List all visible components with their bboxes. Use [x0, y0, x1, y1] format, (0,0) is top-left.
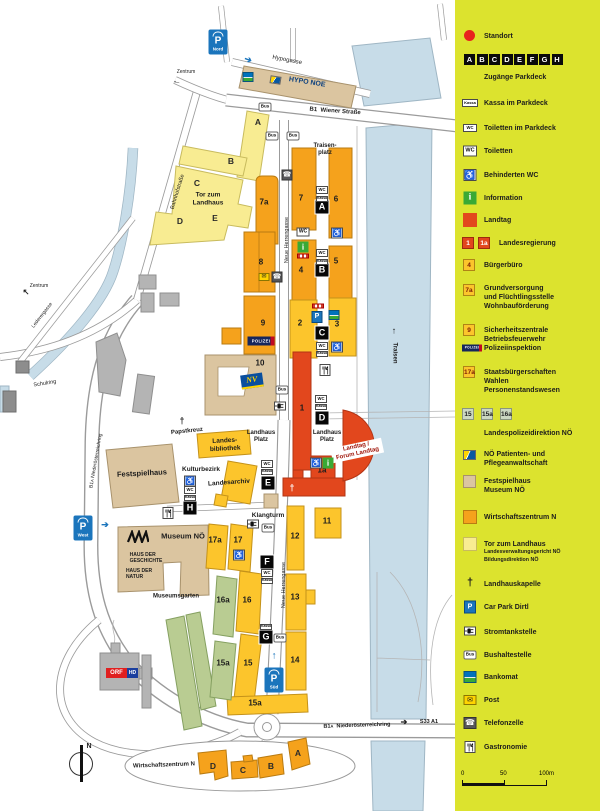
building-3-number: 3: [335, 320, 339, 329]
wc-icon: WC: [316, 186, 328, 194]
telephone-icon: ☎: [272, 272, 283, 283]
legend-standort-label: Standort: [484, 32, 513, 41]
wz-building-b-label: B: [268, 761, 274, 771]
landhaus-platz-label-west: Landhaus Platz: [247, 430, 275, 444]
kassa-icon: Kassa: [462, 99, 478, 107]
bus-stop-icon: Bus: [262, 524, 275, 533]
legend-row-label: Kassa im Parkdeck: [484, 99, 548, 108]
wheelchair-icon: ♿: [331, 342, 343, 353]
sicherheitszentrale-9-icon: 9: [463, 324, 475, 336]
orf-logo: ORF: [106, 668, 127, 678]
niederoesterreichring-label-bottom: Niederösterreichring: [336, 722, 390, 730]
orf-hd-logo: HD: [127, 668, 138, 678]
building-16a-number: 16a: [216, 596, 229, 605]
s33-a1-label: S33 A1: [420, 719, 438, 725]
kassa-icon: Kassa: [184, 495, 196, 501]
legend-row-label: Car Park Dirtl: [484, 603, 529, 612]
legend-row-label: Toiletten: [484, 147, 513, 156]
parkdeck-entrance-h: H: [184, 502, 197, 515]
buergerbuero-4-icon: 4: [463, 259, 475, 271]
legend-panel: Standort A B C D E F G H Zugänge Parkdec…: [455, 0, 600, 811]
building-8-number: 8: [259, 258, 263, 267]
post-icon: ✉: [259, 273, 270, 281]
parking-p: P: [209, 37, 228, 47]
parkdeck-letter-b: B: [477, 54, 488, 65]
scale-bar-solid: [462, 783, 504, 786]
tor-building-d-label: D: [177, 216, 183, 226]
landesbibliothek-label: Landes- bibliothek: [209, 437, 240, 454]
parking-nord-icon: PNord: [209, 30, 228, 55]
scale-bar-line: [504, 785, 546, 786]
tor-building-e-label: E: [212, 213, 218, 223]
legend-row-label: Tor zum Landhaus: [484, 540, 546, 549]
legend-row-label: Stromtankstelle: [484, 628, 537, 637]
parkdeck-entrance-b: B: [316, 264, 329, 277]
papstkreuz-cross-icon: †: [179, 416, 184, 427]
parkdeck-letter-c: C: [489, 54, 500, 65]
parkdeck-letter-d: D: [502, 54, 513, 65]
hypo-noe-flag-icon: [269, 75, 281, 85]
tor-zum-landhaus-color-icon: [463, 537, 477, 551]
bankomat-icon: [329, 310, 340, 320]
legend-row-label: Gastronomie: [484, 743, 527, 752]
standort-icon: [464, 30, 475, 41]
buildings-tor-zum-landhaus: [150, 111, 269, 245]
building-7: [292, 148, 316, 230]
legend-row-sublabel: Landesverwaltungsgericht NÖ Bildungsdire…: [484, 549, 561, 564]
legend-row-label: Post: [484, 696, 499, 705]
legend-row-label: NÖ Patienten- und Pflegeanwaltschaft: [484, 450, 547, 468]
wc-icon: WC: [316, 249, 328, 257]
gastronomie-icon: [320, 364, 331, 376]
wheelchair-icon: ♿: [233, 550, 245, 561]
building-14-number: 14: [291, 656, 300, 665]
parkdeck-letter-e: E: [514, 54, 525, 65]
tor-building-b-label: B: [228, 156, 234, 166]
traisenplatz-label: Traisen- platz: [313, 143, 336, 157]
legend-row-label: Behinderten WC: [484, 171, 538, 180]
building-13-number: 13: [291, 593, 300, 602]
building-4-number: 4: [299, 266, 303, 275]
car-park-dirtl-icon: P: [464, 601, 476, 614]
legend-zugaenge-label: Zugänge Parkdeck: [484, 73, 546, 82]
wc-icon: WC: [316, 342, 328, 350]
parking-sued-arrow: ↑: [272, 651, 277, 662]
stromtankstelle-icon: [247, 520, 259, 529]
bus-stop-icon: Bus: [287, 132, 300, 141]
wheelchair-icon: ♿: [184, 476, 196, 487]
information-icon: i: [323, 458, 334, 469]
festspielhaus-color-icon: [463, 475, 476, 488]
parkdeck-entrance-d: D: [316, 412, 329, 425]
wc-icon: WC: [463, 146, 477, 157]
polizei-sign-text: POLIZEI: [248, 337, 275, 346]
parking-west-icon: PWest: [74, 516, 93, 541]
landhausviertel-map-page: Zentrum ← Hypogasse HYPO NOE B1 Wiener S…: [0, 0, 600, 811]
building-16-number: 16: [243, 596, 252, 605]
bankomat-icon: [464, 671, 477, 683]
parkdeck-letter-a: A: [464, 54, 475, 65]
legend-row-label: Bürgerbüro: [484, 261, 523, 270]
building-9-number: 9: [261, 319, 265, 328]
landhauskapelle-cross-icon: †: [289, 483, 294, 494]
building-12-number: 12: [291, 532, 300, 541]
building-15: [234, 634, 262, 702]
kassa-icon: Kassa: [260, 624, 272, 630]
building-17: [228, 524, 253, 572]
parkdeck-entrance-f: F: [261, 556, 274, 569]
building-klangturm: [264, 494, 278, 508]
legend-row-label: Landhauskapelle: [484, 580, 541, 589]
lpd-15a-icon: 15a: [481, 408, 493, 420]
telephone-icon: ☎: [464, 717, 477, 729]
bus-stop-icon: Bus: [266, 132, 279, 141]
parking-nord-label: Nord: [209, 47, 228, 52]
museum-noe-label: Museum NÖ: [161, 533, 205, 542]
parkdeck-letter-f: F: [527, 54, 538, 65]
building-10-number: 10: [256, 359, 265, 368]
b1a-label-bottom: B1a: [323, 724, 333, 730]
kassa-icon: Kassa: [316, 259, 328, 265]
building-7-number: 7: [299, 194, 303, 203]
compass-needle: [80, 745, 83, 782]
parkdeck-entrance-e: E: [262, 477, 275, 490]
zentrum-label-left: Zentrum: [30, 284, 49, 290]
kassa-icon: Kassa: [261, 469, 273, 475]
legend-row-label: Telefonzelle: [484, 719, 524, 728]
legend-row-label: Toiletten im Parkdeck: [484, 124, 556, 133]
wc-icon: WC: [184, 486, 196, 494]
parking-sued-label: Süd: [265, 685, 284, 690]
kassa-icon: Kassa: [315, 404, 327, 410]
gastronomie-icon: [163, 507, 174, 519]
street-neue-herrengasse-bottom: Neue Herrengasse: [281, 562, 287, 608]
kassa-icon: Kassa: [316, 196, 328, 202]
b1a-direction-arrow: ➔: [401, 717, 408, 726]
street-neue-herrengasse-top: Neue Herrengasse: [284, 217, 290, 263]
tor-building-c-label: C: [194, 178, 200, 188]
bus-stop-icon: Bus: [274, 634, 287, 643]
tor-building-a-label: A: [255, 117, 261, 127]
legend-row-label: Wirtschaftszentrum N: [484, 513, 556, 522]
legend-row-label: Landesregierung: [499, 239, 556, 248]
building-15a: [210, 641, 236, 700]
building-1-number: 1: [300, 404, 304, 413]
building-17a-number: 17a: [208, 536, 221, 545]
wz-building-c-label: C: [240, 765, 246, 775]
building-11-number: 11: [323, 517, 331, 526]
legend-row-label: Staatsbürgerschaften Wahlen Personenstan…: [484, 368, 560, 395]
noe-flag-icon: [463, 450, 476, 460]
kassa-icon: Kassa: [316, 351, 328, 357]
parkdeck-entrance-c: C: [316, 327, 329, 340]
grundversorgung-7a-icon: 7a: [463, 284, 475, 296]
building-15a-bar-number: 15a: [248, 699, 261, 708]
wheelchair-icon: ♿: [310, 458, 322, 469]
polizei-sign: POLIZEI: [248, 337, 275, 346]
parking-sued-icon: PSüd: [265, 668, 284, 693]
wc-icon: WC: [297, 228, 310, 237]
b1-label: B1: [309, 107, 317, 114]
information-icon: i: [464, 192, 477, 205]
haus-der-geschichte-label: HAUS DER GESCHICHTE: [130, 553, 163, 565]
parking-p: P: [74, 523, 93, 533]
bus-stop-icon: Bus: [259, 103, 272, 112]
legend-row-label: Landespolizeidirektion NÖ: [484, 429, 572, 438]
map-canvas: Zentrum ← Hypogasse HYPO NOE B1 Wiener S…: [0, 0, 455, 811]
polizei-icon: POLIZEI: [462, 345, 482, 352]
car-park-dirtl-icon: P: [312, 311, 323, 323]
building-2-number: 2: [298, 319, 302, 328]
wz-building-d-label: D: [210, 761, 216, 771]
kapelle-cross-icon: †: [467, 577, 473, 590]
scale-0-label: 0: [461, 771, 464, 777]
telephone-icon: ☎: [282, 170, 293, 181]
post-icon: ✉: [464, 695, 477, 705]
building-15-number: 15: [244, 659, 253, 668]
building-6: [329, 148, 352, 238]
map-base-svg: [0, 0, 455, 811]
betriebsfeuerwehr-icon: [312, 304, 324, 309]
landtag-color-icon: [463, 213, 477, 227]
legend-row-label: Landtag: [484, 216, 511, 225]
staatsbuergerschaften-17a-icon: 17a: [463, 366, 475, 378]
zentrum-label-top: Zentrum: [177, 70, 196, 76]
wc-icon: WC: [315, 395, 327, 403]
parkdeck-entrance-g: G: [260, 631, 273, 644]
scale-50-label: 50: [500, 771, 507, 777]
betriebsfeuerwehr-icon: [297, 254, 309, 259]
scale-100-label: 100m: [539, 771, 554, 777]
building-2: [290, 300, 317, 358]
building-17a: [206, 524, 228, 570]
zentrum-arrow-left: ↖: [23, 287, 30, 296]
legend-row-label: Bankomat: [484, 673, 518, 682]
legend-row-label: Festspielhaus Museum NÖ: [484, 477, 531, 495]
traisen-flow-arrow: ↑: [392, 326, 397, 337]
landesregierung-1-icon: 1: [462, 237, 474, 249]
kulturbezirk-label: Kulturbezirk: [182, 466, 220, 474]
legend-row-label: Sicherheitszentrale Betriebsfeuerwehr Po…: [484, 326, 548, 353]
wz-building-a-label: A: [295, 748, 301, 758]
information-icon: i: [298, 242, 309, 253]
lpd-15-icon: 15: [462, 408, 474, 420]
parking-p: P: [265, 675, 284, 685]
bus-stop-icon: Bus: [276, 386, 289, 395]
haus-der-natur-label: HAUS DER NATUR: [126, 569, 152, 581]
parking-west-label: West: [74, 533, 93, 538]
building-5: [329, 246, 352, 302]
parkdeck-letter-h: H: [552, 54, 563, 65]
stromtankstelle-icon: [274, 402, 286, 411]
compass-n-label: N: [86, 743, 91, 751]
landesregierung-1a-icon: 1a: [478, 237, 490, 249]
parkdeck-letter-g: G: [539, 54, 550, 65]
building-17-number: 17: [234, 536, 243, 545]
bankomat-icon: [243, 72, 254, 82]
stromtankstelle-icon: [464, 627, 476, 636]
gastronomie-icon: [465, 741, 476, 753]
building-16a: [213, 576, 237, 637]
landhaus-platz-label-east: Landhaus Platz: [313, 430, 341, 444]
scale-tick: [546, 780, 547, 786]
kassa-icon: Kassa: [261, 578, 273, 584]
legend-row-label: Grundversorgung und Flüchtlingsstelle Wo…: [484, 284, 554, 311]
museumsgarten-label: Museumsgarten: [153, 593, 199, 600]
tor-zum-landhaus-label: Tor zum Landhaus: [193, 191, 224, 206]
bus-stop-icon: Bus: [464, 651, 477, 660]
wheelchair-icon: ♿: [464, 169, 477, 181]
building-5-number: 5: [334, 257, 338, 266]
wc-parkdeck-icon: WC: [463, 124, 477, 132]
wc-icon: WC: [261, 460, 273, 468]
legend-row-label: Information: [484, 194, 523, 203]
wirtschaftszentrum-color-icon: [463, 510, 477, 524]
parkdeck-entrance-a: A: [316, 201, 329, 214]
b1a-label: B1a: [88, 479, 95, 489]
building-7a-number: 7a: [260, 198, 269, 207]
museum-noe-logo-icon: [127, 530, 149, 543]
building-13: [286, 574, 306, 630]
building-15a-bar: [227, 694, 308, 715]
legend-row-label: Bushaltestelle: [484, 651, 531, 660]
river-traisen-label: Traisen: [390, 342, 397, 363]
building-6-number: 6: [334, 195, 338, 204]
building-15a-number: 15a: [216, 659, 229, 668]
lpd-16a-icon: 16a: [500, 408, 512, 420]
wheelchair-icon: ♿: [331, 228, 343, 239]
parking-west-arrow: ➔: [101, 520, 109, 531]
wc-icon: WC: [261, 569, 273, 577]
